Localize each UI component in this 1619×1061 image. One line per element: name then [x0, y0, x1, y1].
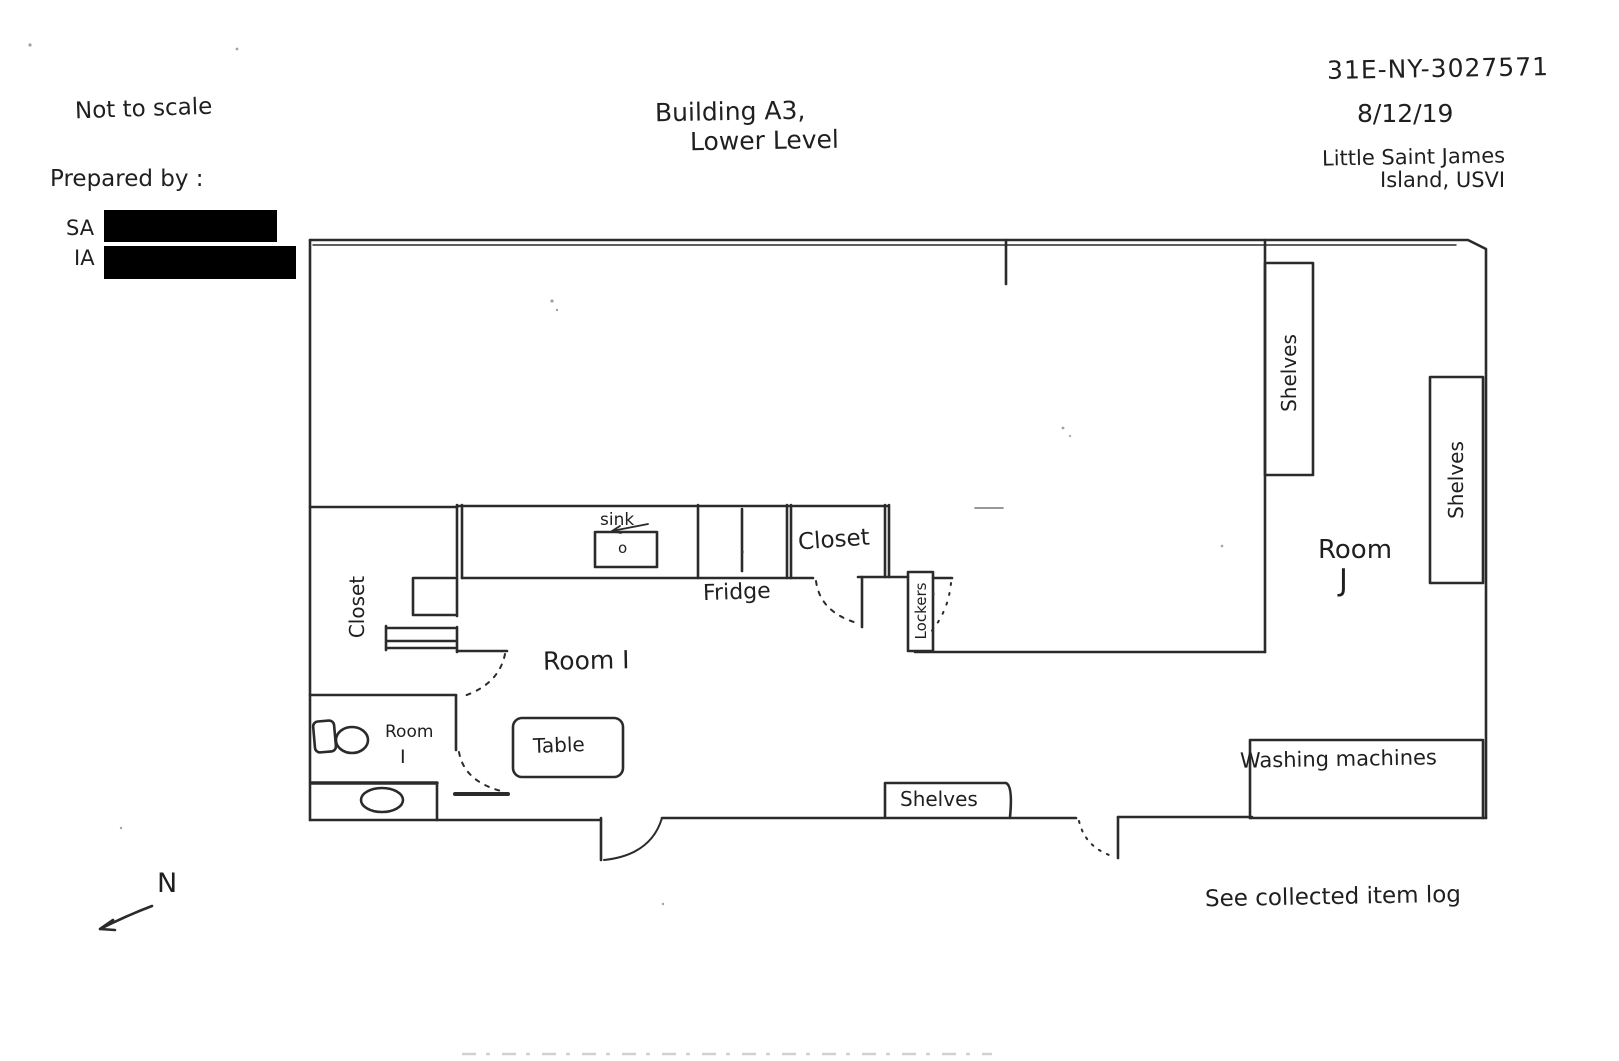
see-collected-item-log-note: See collected item log [1205, 882, 1461, 912]
drawing-title-line2: Lower Level [690, 125, 839, 157]
lockers-label: Lockers [912, 566, 930, 656]
redaction-bar-ia [104, 246, 296, 279]
sink-drain-mark: o [618, 539, 627, 557]
outer-wall-top-right [310, 240, 1486, 818]
center-closet-door-swing-dashed [816, 581, 857, 623]
location-line2: Island, USVI [1380, 168, 1505, 192]
case-date: 8/12/19 [1357, 99, 1453, 128]
second-door-swing-dashed [1079, 821, 1112, 856]
preparer-role-ia: IA [74, 246, 95, 270]
room-i-small-label-line1: Room [385, 722, 433, 742]
table-label: Table [533, 732, 586, 758]
scan-speckles [28, 43, 1223, 905]
center-closet-wall-right-double [885, 505, 889, 577]
closet-left-label: Closet [345, 557, 369, 657]
fridge-label: Fridge [703, 579, 772, 606]
prepared-by-label: Prepared by : [50, 166, 204, 192]
north-label: N [157, 868, 177, 899]
redaction-bar-sa [104, 210, 277, 242]
location-line1: Little Saint James [1322, 143, 1505, 170]
closet-bench [386, 626, 455, 650]
shelves-left-label: Shelves [1277, 323, 1301, 423]
north-arrow [100, 906, 152, 930]
bathroom-sink-fixture [313, 720, 337, 753]
washing-machines-label: Washing machines [1240, 745, 1437, 772]
case-number: 31E-NY-3027571 [1327, 52, 1549, 85]
room-i-door-swing-dashed [464, 654, 505, 696]
bathroom-door-swing-dashed [459, 752, 501, 791]
room-i-main-label: Room I [543, 645, 630, 676]
scanned-floor-plan-page: Not to scale Prepared by : SA IA Buildin… [0, 0, 1619, 1061]
room-j-label-line2: J [1339, 563, 1348, 598]
shelves-right-label: Shelves [1444, 430, 1468, 530]
closet-center-label: Closet [797, 525, 870, 556]
room-i-small-label-line2: I [400, 746, 406, 768]
sink-label: sink [600, 510, 634, 530]
shelves-bottom-label: Shelves [900, 787, 978, 811]
preparer-role-sa: SA [66, 216, 94, 240]
toilet-upper [336, 727, 368, 753]
fridge-wall-right-double [787, 505, 791, 578]
room-j-label-line1: Room [1318, 535, 1392, 565]
not-to-scale-note: Not to scale [75, 94, 213, 125]
toilet-lower [361, 788, 403, 812]
main-door-swing [604, 818, 662, 860]
closet-shelf-box [413, 578, 455, 615]
drawing-title-line1: Building A3, [655, 96, 806, 128]
